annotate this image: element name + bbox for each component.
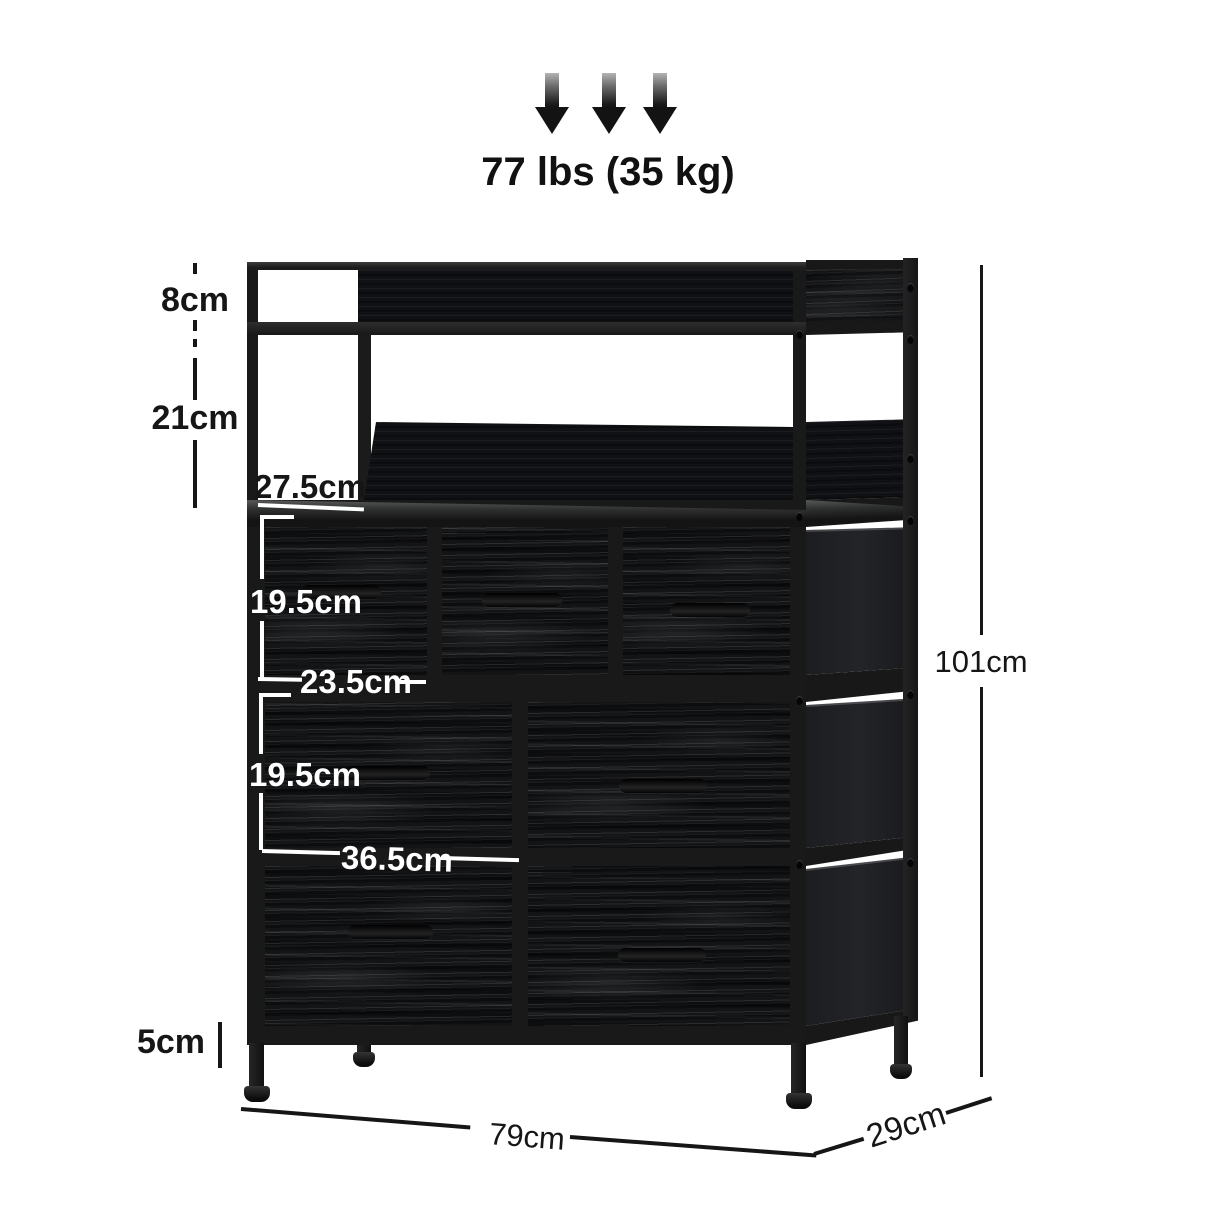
screw-dot — [796, 860, 803, 869]
dim-label-large-drawer-height: 19.5cm — [249, 756, 349, 794]
dim-line-small-drawer-height — [260, 515, 264, 579]
dim-label-top-shelf-height: 8cm — [147, 281, 243, 320]
dim-label-overall-depth: 29cm — [853, 1091, 960, 1158]
drawer-handle — [348, 925, 433, 939]
dim-line-overall-height-b — [980, 687, 983, 1077]
fabric-bin-side — [806, 699, 905, 848]
arrow-shaft — [653, 73, 667, 109]
dim-label-overall-width: 79cm — [476, 1115, 578, 1158]
cabinet-front — [247, 262, 806, 1045]
dim-label-small-drawer-width: 23.5cm — [300, 663, 400, 701]
fabric-bin-side — [806, 858, 905, 1026]
dim-line-overall-width-a — [241, 1107, 471, 1129]
cabinet-side-panel — [806, 260, 918, 1045]
screw-dot — [907, 335, 914, 344]
dim-line-open-shelf-height-b — [193, 440, 197, 508]
arrow-head — [643, 107, 677, 134]
top-shelf-gap — [258, 270, 358, 322]
side-fabric-row — [806, 520, 905, 675]
arrow-head — [535, 107, 569, 134]
arrow-shaft — [602, 73, 616, 109]
top-rail — [247, 262, 806, 270]
dim-label-foot-height: 5cm — [110, 1023, 205, 1062]
capacity-label: 77 lbs (35 kg) — [428, 150, 788, 195]
screw-dot — [907, 858, 914, 867]
drawer-front — [528, 866, 790, 1026]
dim-label-small-drawer-height: 19.5cm — [250, 583, 350, 621]
drawer-handle — [618, 948, 706, 962]
dim-line-overall-width-b — [570, 1135, 817, 1158]
dim-label-open-shelf-height: 21cm — [135, 399, 255, 438]
dim-line-open-shelf-height — [193, 358, 197, 400]
leg — [791, 1043, 806, 1095]
drawer-handle — [670, 603, 750, 617]
dim-tick-large-drawer — [259, 693, 291, 697]
dim-line-overall-height-a — [980, 265, 983, 635]
leg — [894, 1016, 908, 1066]
foot-pad — [890, 1064, 912, 1079]
dim-line-large-drawer-height — [259, 693, 263, 754]
side-top-shelf-wood — [806, 268, 905, 322]
product-dimension-diagram: 77 lbs (35 kg) — [0, 0, 1214, 1214]
screw-dot — [796, 330, 803, 339]
fabric-bin-side — [806, 527, 905, 675]
screw-dot — [907, 283, 914, 292]
dim-line-overall-depth-a — [813, 1137, 864, 1156]
screw-dot — [907, 516, 914, 525]
dim-label-large-drawer-width: 36.5cm — [340, 839, 441, 880]
down-arrow-icon — [535, 73, 569, 133]
leg — [249, 1043, 264, 1088]
dim-line-large-drawer-height-b — [259, 793, 263, 850]
down-arrow-icon — [643, 73, 677, 133]
foot-pad — [786, 1093, 812, 1109]
dim-label-overall-height: 101cm — [931, 644, 1031, 680]
dim-line-small-drawer-width-b — [398, 680, 426, 684]
arrow-head — [592, 107, 626, 134]
drawer-handle — [619, 779, 707, 793]
foot-pad — [244, 1086, 270, 1102]
screw-dot — [907, 454, 914, 463]
down-arrow-icon — [592, 73, 626, 133]
drawer-front — [623, 527, 790, 675]
dim-line-small-drawer-height-b — [260, 621, 264, 680]
drawer-front — [528, 702, 790, 848]
foot-pad — [353, 1052, 375, 1067]
screw-dot — [796, 696, 803, 705]
side-fabric-row — [806, 692, 905, 848]
screw-dot — [796, 512, 803, 521]
arrow-shaft — [545, 73, 559, 109]
shelf-rail — [247, 322, 806, 335]
side-fabric-row — [806, 850, 905, 1026]
drawer-handle — [482, 593, 562, 607]
dim-line-small-drawer-width-a — [258, 677, 302, 682]
dim-label-shelf-opening-width: 27.5cm — [254, 468, 366, 506]
open-shelf-backboard — [364, 422, 793, 500]
back-right-post — [903, 258, 918, 1020]
top-shelf-backboard — [358, 270, 793, 322]
drawer-front — [265, 866, 512, 1026]
dim-line-foot-height — [218, 1022, 222, 1068]
dim-tick-small-drawer — [260, 515, 294, 519]
screw-dot — [907, 690, 914, 699]
side-back-panel — [806, 419, 905, 500]
